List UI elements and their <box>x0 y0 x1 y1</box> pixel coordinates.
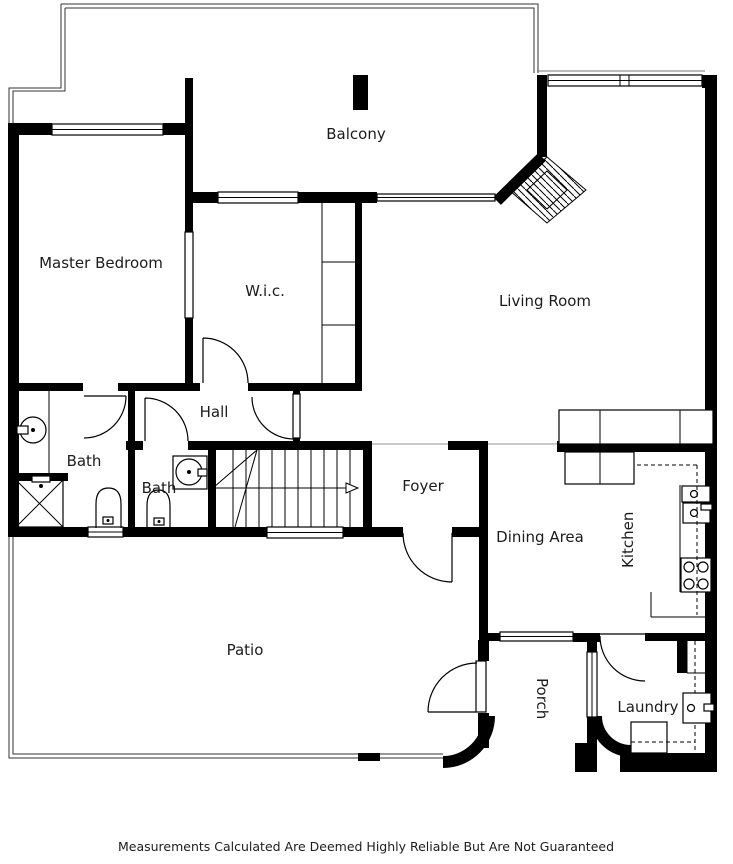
room-label-balcony: Balcony <box>326 125 386 143</box>
wall <box>118 383 185 391</box>
room-label-living-room: Living Room <box>499 292 591 310</box>
balcony-pillar <box>353 75 368 110</box>
wall <box>8 383 83 391</box>
window-porch <box>587 652 597 717</box>
wall <box>293 388 300 394</box>
wall <box>8 527 88 537</box>
disclaimer-text: Measurements Calculated Are Deemed Highl… <box>118 839 614 854</box>
window-balcony-living <box>377 194 495 201</box>
wall <box>478 640 489 661</box>
wall <box>573 633 600 642</box>
wall <box>128 391 135 535</box>
patio-edge-post <box>358 753 380 761</box>
wall <box>343 527 403 537</box>
wall <box>193 192 218 203</box>
wall <box>185 78 193 232</box>
wall <box>479 450 488 640</box>
opening-master-wic <box>185 232 193 318</box>
wall <box>363 441 372 535</box>
wall <box>123 527 267 537</box>
room-label-dining-area: Dining Area <box>496 528 584 546</box>
wall <box>620 753 717 772</box>
room-label-patio: Patio <box>227 641 264 659</box>
window-master-bedroom <box>52 124 163 135</box>
wall <box>645 633 705 641</box>
room-label-foyer: Foyer <box>402 477 444 495</box>
wall <box>537 75 547 157</box>
wall <box>487 633 500 641</box>
wall <box>163 123 185 135</box>
wall <box>298 192 377 203</box>
room-label-laundry: Laundry <box>617 698 678 716</box>
room-label-master-bedroom: Master Bedroom <box>39 254 163 272</box>
floorplan-drawing: Balcony Master Bedroom W.i.c. Living Roo… <box>0 0 733 864</box>
wall <box>587 641 597 652</box>
sink-icon <box>173 456 207 489</box>
room-label-kitchen: Kitchen <box>619 512 637 568</box>
wall <box>355 192 362 391</box>
wall <box>448 441 488 450</box>
window-bath <box>88 527 123 537</box>
room-label-wic: W.i.c. <box>245 282 285 300</box>
wall <box>575 743 597 772</box>
room-label-bath-2: Bath <box>142 479 177 497</box>
window-dining <box>500 632 573 641</box>
wall <box>452 527 479 537</box>
window-wic <box>218 192 298 203</box>
room-label-hall: Hall <box>200 403 229 421</box>
room-label-porch: Porch <box>533 678 551 719</box>
room-label-bath-1: Bath <box>67 452 102 470</box>
floorplan-page: Balcony Master Bedroom W.i.c. Living Roo… <box>0 0 733 864</box>
opening-hall <box>293 394 300 438</box>
wall <box>248 383 362 391</box>
wall <box>677 641 687 673</box>
wall <box>185 318 193 391</box>
stove-icon <box>681 558 711 592</box>
window-living-room <box>548 75 702 86</box>
wall <box>185 383 200 391</box>
window-stairs <box>267 527 343 538</box>
washer-icon <box>683 693 714 723</box>
